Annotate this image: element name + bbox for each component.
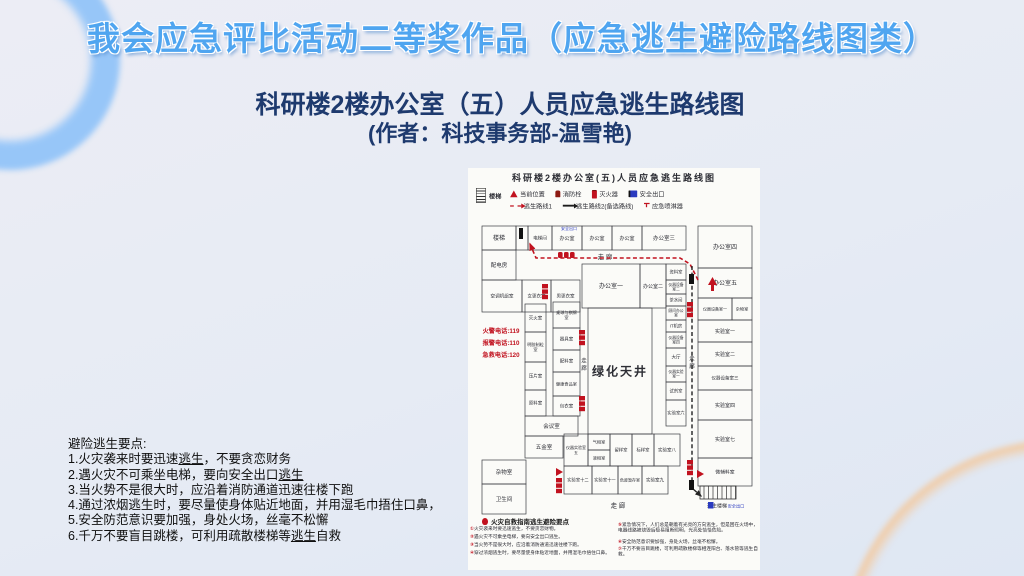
escape-points-list: 1.火灾袭来时要迅速逃生，不要贪恋财务2.遇火灾不可乘坐电梯，要向安全出口逃生3… [68, 452, 441, 544]
note-point: ①火灾袭来时要迅速逃生，不要贪恋财物。 [470, 526, 618, 531]
note-point: ⑥安全防范意识要加强，身处火场，丝毫不松懈。 [618, 539, 758, 544]
escape-point-line: 2.遇火灾不可乘坐电梯，要向安全出口逃生 [68, 468, 441, 483]
escape-point-line: 1.火灾袭来时要迅速逃生，不要贪恋财务 [68, 452, 441, 467]
slide-subtitle: 科研楼2楼办公室（五）人员应急逃生路线图 (作者：科技事务部-温雪艳) [0, 90, 1000, 148]
escape-point-line: 6.千万不要盲目跳楼，可利用疏散楼梯等逃生自救 [68, 529, 441, 544]
note-point: ③当火势不是很大时，应沿着消防通道迅速往楼下跑。 [470, 542, 618, 547]
escape-point-line: 3.当火势不是很大时，应沿着消防通道迅速往楼下跑 [68, 483, 441, 498]
subtitle-line1: 科研楼2楼办公室（五）人员应急逃生路线图 [0, 90, 1000, 120]
note-point: ⑦千万不要盲目跳楼，可利用疏散楼梯等相连阳台、落水管等逃生自救。 [618, 546, 758, 557]
decor-ring-orange [840, 440, 1024, 576]
flame-icon [482, 518, 488, 525]
note-heading: 火灾自救指南逃生避险要点 [482, 516, 569, 526]
floorplan-image: 科研楼2楼办公室(五)人员应急逃生路线图 楼梯 当前位置消防栓灭火器安全出口 逃… [468, 168, 760, 570]
escape-point-line: 5.安全防范意识要加强，身处火场，丝毫不松懈 [68, 513, 441, 528]
slide: 我会应急评比活动二等奖作品（应急逃生避险路线图类） 科研楼2楼办公室（五）人员应… [0, 0, 1024, 576]
slide-title: 我会应急评比活动二等奖作品（应急逃生避险路线图类） [0, 12, 1024, 60]
escape-point-line: 4.通过浓烟逃生时，要尽量使身体贴近地面，并用湿毛巾捂住口鼻， [68, 498, 441, 513]
escape-points-block: 避险逃生要点: 1.火灾袭来时要迅速逃生，不要贪恋财务2.遇火灾不可乘坐电梯，要… [68, 437, 441, 544]
note-point: ②遇火灾不可乘坐电梯，要向安全出口逃生。 [470, 534, 618, 539]
note-point: ⑤紧急情况下，人们总是朝着有光亮的方向逃生，但是困在火场中，电器线路被烧毁后极易… [618, 522, 758, 533]
subtitle-line2: (作者：科技事务部-温雪艳) [0, 120, 1000, 148]
escape-points-heading: 避险逃生要点: [68, 437, 441, 452]
note-point: ④穿过浓烟逃生时，要尽量使身体贴近地面，并用湿毛巾捂住口鼻。 [470, 550, 620, 555]
floorplan-note: 火灾自救指南逃生避险要点 ①火灾袭来时要迅速逃生，不要贪恋财物。②遇火灾不可乘坐… [468, 168, 760, 570]
